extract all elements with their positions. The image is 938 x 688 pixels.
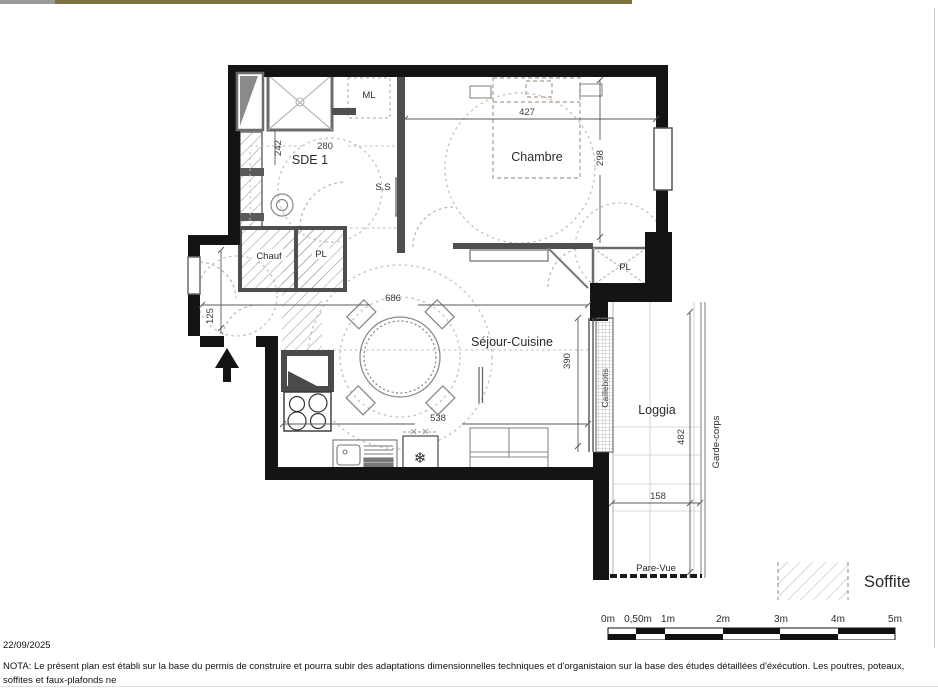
- wall-left-mid-a: [188, 245, 200, 257]
- turning-circle-sejour-inner: [340, 297, 460, 417]
- room-label-chambre: Chambre: [511, 150, 562, 164]
- nota-block: NOTA: Le présent plan est établi sur la …: [3, 660, 935, 688]
- drainer-bar-2: [364, 463, 393, 467]
- dim-loggia-height: 482: [676, 429, 687, 445]
- label-pare-vue: Pare-Vue: [636, 563, 676, 574]
- scale-label-050m: 0,50m: [624, 614, 652, 625]
- dim-sde-width: 280: [317, 141, 333, 152]
- radiator: [479, 367, 483, 403]
- entry-window: [188, 257, 200, 294]
- soffite-swatch: [778, 562, 848, 600]
- scale-label-4m: 4m: [831, 614, 845, 625]
- label-chauf: Chauf: [256, 251, 282, 262]
- scale-label-5m: 5m: [888, 614, 902, 625]
- dim-entry-width: 125: [205, 308, 216, 324]
- dim-sde-height: 242: [273, 140, 284, 156]
- page-right-border: [934, 8, 935, 648]
- dim-sejour-width-bottom: 538: [430, 413, 446, 424]
- wall-loggia-top: [608, 283, 645, 302]
- scale-seg-top-3: [838, 628, 895, 634]
- top-strip-gray: [0, 0, 55, 4]
- wall-bottom-left-b: [256, 336, 278, 347]
- wall-corner-block: [645, 232, 672, 302]
- left-strip-divider-1: [238, 168, 264, 176]
- sink-area: [333, 440, 397, 468]
- scale-seg-bottom-1: [608, 634, 636, 640]
- wall-loggia-left: [593, 452, 609, 580]
- partition-chambre-bottom: [453, 243, 593, 249]
- scale-seg-bottom-3: [780, 634, 838, 640]
- scale-seg-bottom-2: [665, 634, 723, 640]
- scale-label-3m: 3m: [774, 614, 788, 625]
- entry-window-arc: [200, 262, 236, 298]
- dim-chambre-height: 298: [595, 150, 606, 166]
- top-strip-olive: [55, 0, 632, 4]
- room-label-loggia: Loggia: [638, 403, 676, 417]
- label-garde-corps: Garde-corps: [711, 415, 722, 468]
- wall-bay-stub: [590, 283, 608, 321]
- partition-ml-stub: [332, 108, 356, 115]
- label-pl-chambre: PL: [619, 262, 631, 273]
- door-leaf-diagonal: [548, 248, 588, 288]
- chair-4: [426, 386, 455, 415]
- dining-table: [360, 317, 440, 397]
- floor-plan-page: ❄: [0, 0, 938, 688]
- left-strip-divider-2: [238, 213, 264, 221]
- floor-plan-svg: ❄: [0, 0, 938, 640]
- entry-door-arc: [222, 305, 258, 341]
- faucet: [343, 450, 347, 454]
- partition-sde-chambre: [397, 77, 405, 253]
- nota-line-1: NOTA: Le présent plan est établi sur la …: [3, 660, 935, 688]
- wall-left-step: [188, 235, 240, 245]
- garde-corps-rail: [701, 302, 705, 578]
- drainer-bar-1: [364, 458, 393, 462]
- sliding-door-leaf: [470, 250, 548, 261]
- sofa: [470, 428, 548, 471]
- nightstands: [470, 84, 602, 98]
- nightstand-left: [470, 86, 491, 98]
- label-caillebotis: Caillebotis: [600, 368, 610, 407]
- dim-sejour-height: 390: [562, 353, 573, 369]
- plan-date: 22/09/2025: [3, 641, 935, 651]
- chambre-window: [654, 128, 672, 190]
- wall-bottom: [265, 467, 602, 480]
- label-pl-entry: PL: [315, 249, 327, 260]
- wall-left-mid-b: [188, 294, 200, 336]
- label-ml: ML: [362, 90, 375, 101]
- scale-label-2m: 2m: [716, 614, 730, 625]
- dim-loggia-width: 158: [650, 491, 666, 502]
- dim-chambre-width: 427: [519, 107, 535, 118]
- wall-right-upper: [656, 77, 668, 128]
- scale-bar: 0m 0,50m 1m 2m 3m 4m 5m: [601, 614, 902, 640]
- label-ss: S.S: [375, 182, 390, 193]
- dim-sejour-width-top: 686: [385, 293, 401, 304]
- wall-top: [228, 65, 668, 77]
- scale-labels: 0m 0,50m 1m 2m 3m 4m 5m: [601, 614, 902, 625]
- dining-table-inner: [364, 321, 436, 393]
- room-label-sejour: Séjour-Cuisine: [471, 335, 553, 349]
- sink: [337, 445, 360, 465]
- bed-pillow: [526, 81, 552, 97]
- scale-seg-top-2: [723, 628, 780, 634]
- snowflake-icon: ❄: [414, 450, 427, 467]
- nightstand-right: [580, 84, 602, 96]
- room-label-sde1: SDE 1: [292, 153, 328, 167]
- chair-3: [346, 386, 375, 415]
- soffite-legend: Soffite: [778, 562, 910, 600]
- scale-seg-top-1: [636, 628, 665, 634]
- chambre-door-arc: [413, 207, 453, 247]
- wall-left-lower: [265, 347, 278, 467]
- doors: [470, 248, 588, 288]
- washbasin: [271, 194, 293, 216]
- scale-label-0m: 0m: [601, 614, 615, 625]
- dining-set: [346, 300, 455, 415]
- scale-label-1m: 1m: [661, 614, 675, 625]
- shower: [268, 75, 332, 130]
- wall-bottom-left-a: [200, 336, 224, 347]
- partitions: [332, 77, 593, 253]
- soffite-legend-label: Soffite: [864, 573, 910, 591]
- sde-door-arc: [300, 182, 346, 228]
- entry-arrow-icon: [215, 348, 239, 382]
- wall-right-mid: [656, 190, 668, 232]
- footer: 22/09/2025 NOTA: Le présent plan est éta…: [3, 641, 935, 688]
